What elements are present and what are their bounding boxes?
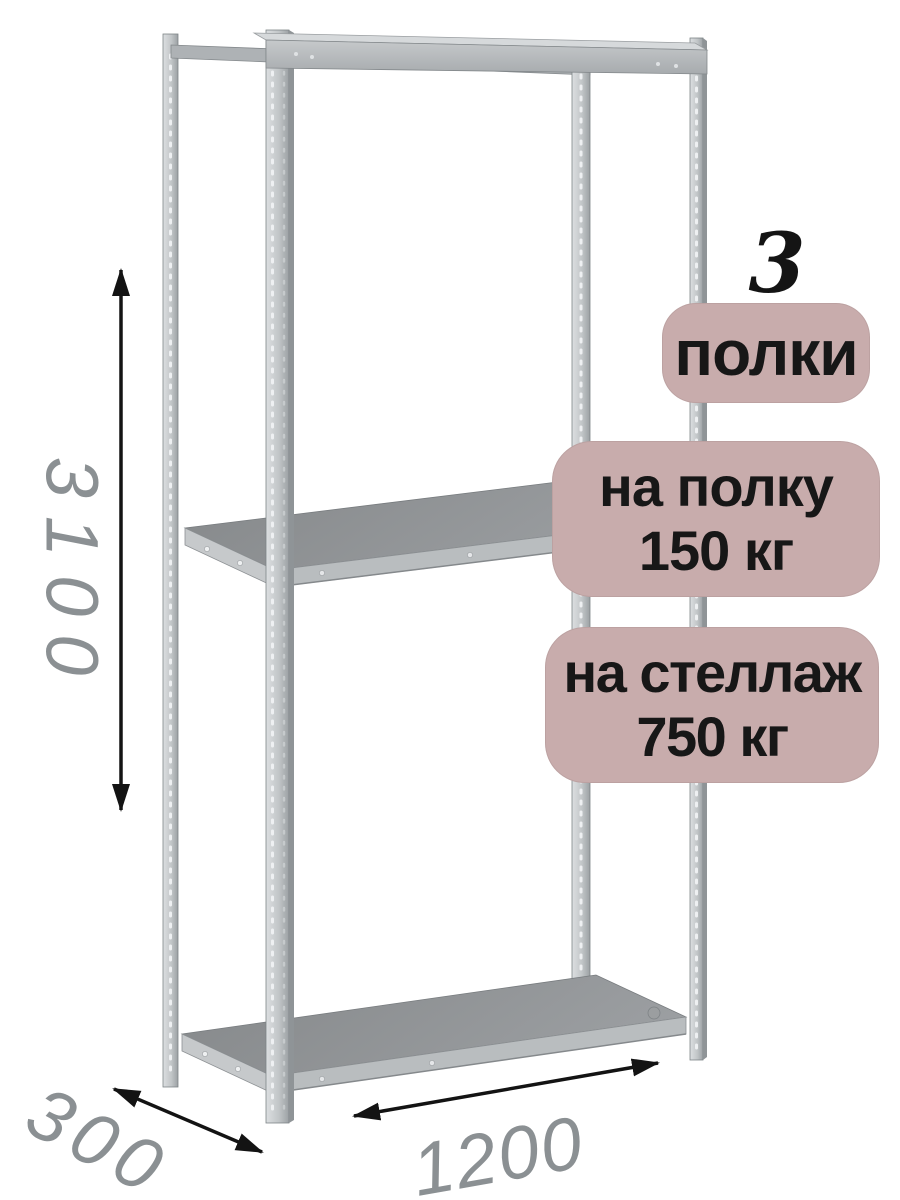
rack-load-line2: 750 кг (636, 705, 787, 769)
rack-illustration (0, 0, 900, 1200)
bottom-shelf (182, 975, 686, 1093)
shelf-count: 3 (748, 223, 805, 305)
shelf-count-badge-label: полки (674, 317, 857, 390)
back-left-post (163, 34, 178, 1087)
rack-load-badge: на стеллаж 750 кг (545, 627, 879, 783)
product-image: 3100 300 1200 3 полки на полку 150 кг на… (0, 0, 900, 1200)
front-left-post (266, 30, 294, 1123)
shelf-load-line2: 150 кг (639, 519, 793, 583)
top-shelf-beam (254, 33, 707, 74)
shelf-count-badge: полки (662, 303, 870, 403)
shelf-load-badge: на полку 150 кг (552, 441, 880, 597)
rack-load-line1: на стеллаж (563, 641, 860, 705)
shelf-load-line1: на полку (599, 455, 833, 519)
height-dimension-label: 3100 (30, 457, 115, 694)
